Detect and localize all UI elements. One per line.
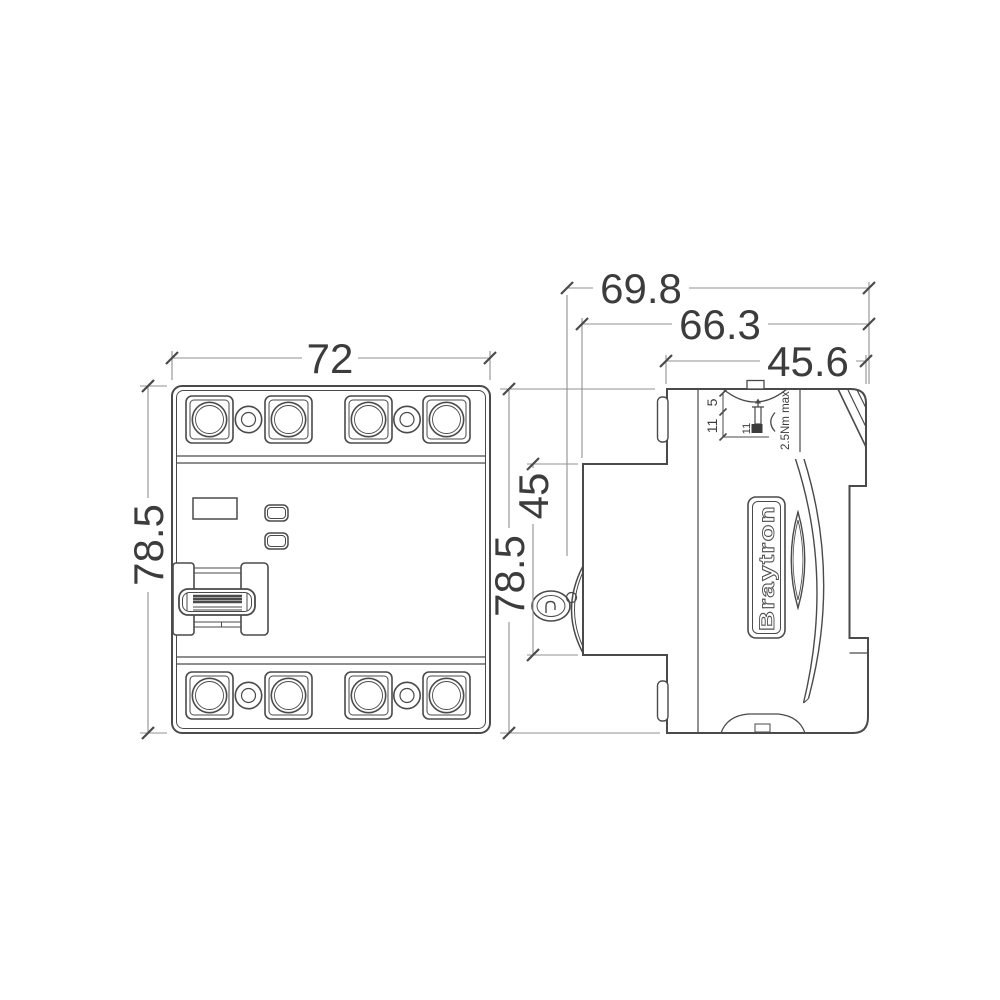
torque-note-text: 2.5Nm max xyxy=(780,391,792,450)
dimension-front-width: 72 xyxy=(166,335,496,382)
dim-text-72: 72 xyxy=(307,335,354,382)
dim-text-78.5-side: 78.5 xyxy=(486,535,533,617)
toggle-handle xyxy=(179,589,255,615)
dim-text-11: 11 xyxy=(704,419,720,434)
side-body-outline xyxy=(583,389,868,733)
dim-text-45: 45 xyxy=(510,473,557,520)
brand-label: Braytron xyxy=(748,497,785,638)
dimension-drawing: Braytron 72 xyxy=(0,0,1000,1000)
side-toggle-lever xyxy=(532,566,583,653)
dim-text-78.5-front: 78.5 xyxy=(125,504,172,586)
front-edge-tab-top xyxy=(658,397,669,442)
top-terminal-tab xyxy=(747,381,764,390)
front-edge-tab-bottom xyxy=(658,681,669,721)
dim-text-45.6: 45.6 xyxy=(767,338,849,385)
technical-drawing-page: Braytron 72 xyxy=(0,0,1000,1000)
dim-text-11-screw: 11 xyxy=(741,423,753,434)
brand-label-text: Braytron xyxy=(756,505,779,631)
dim-text-66.3: 66.3 xyxy=(679,301,761,348)
front-view xyxy=(172,386,490,733)
dimension-front-height: 78.5 xyxy=(125,380,172,739)
dim-text-5: 5 xyxy=(704,398,720,406)
dim-text-69.8: 69.8 xyxy=(600,265,682,312)
